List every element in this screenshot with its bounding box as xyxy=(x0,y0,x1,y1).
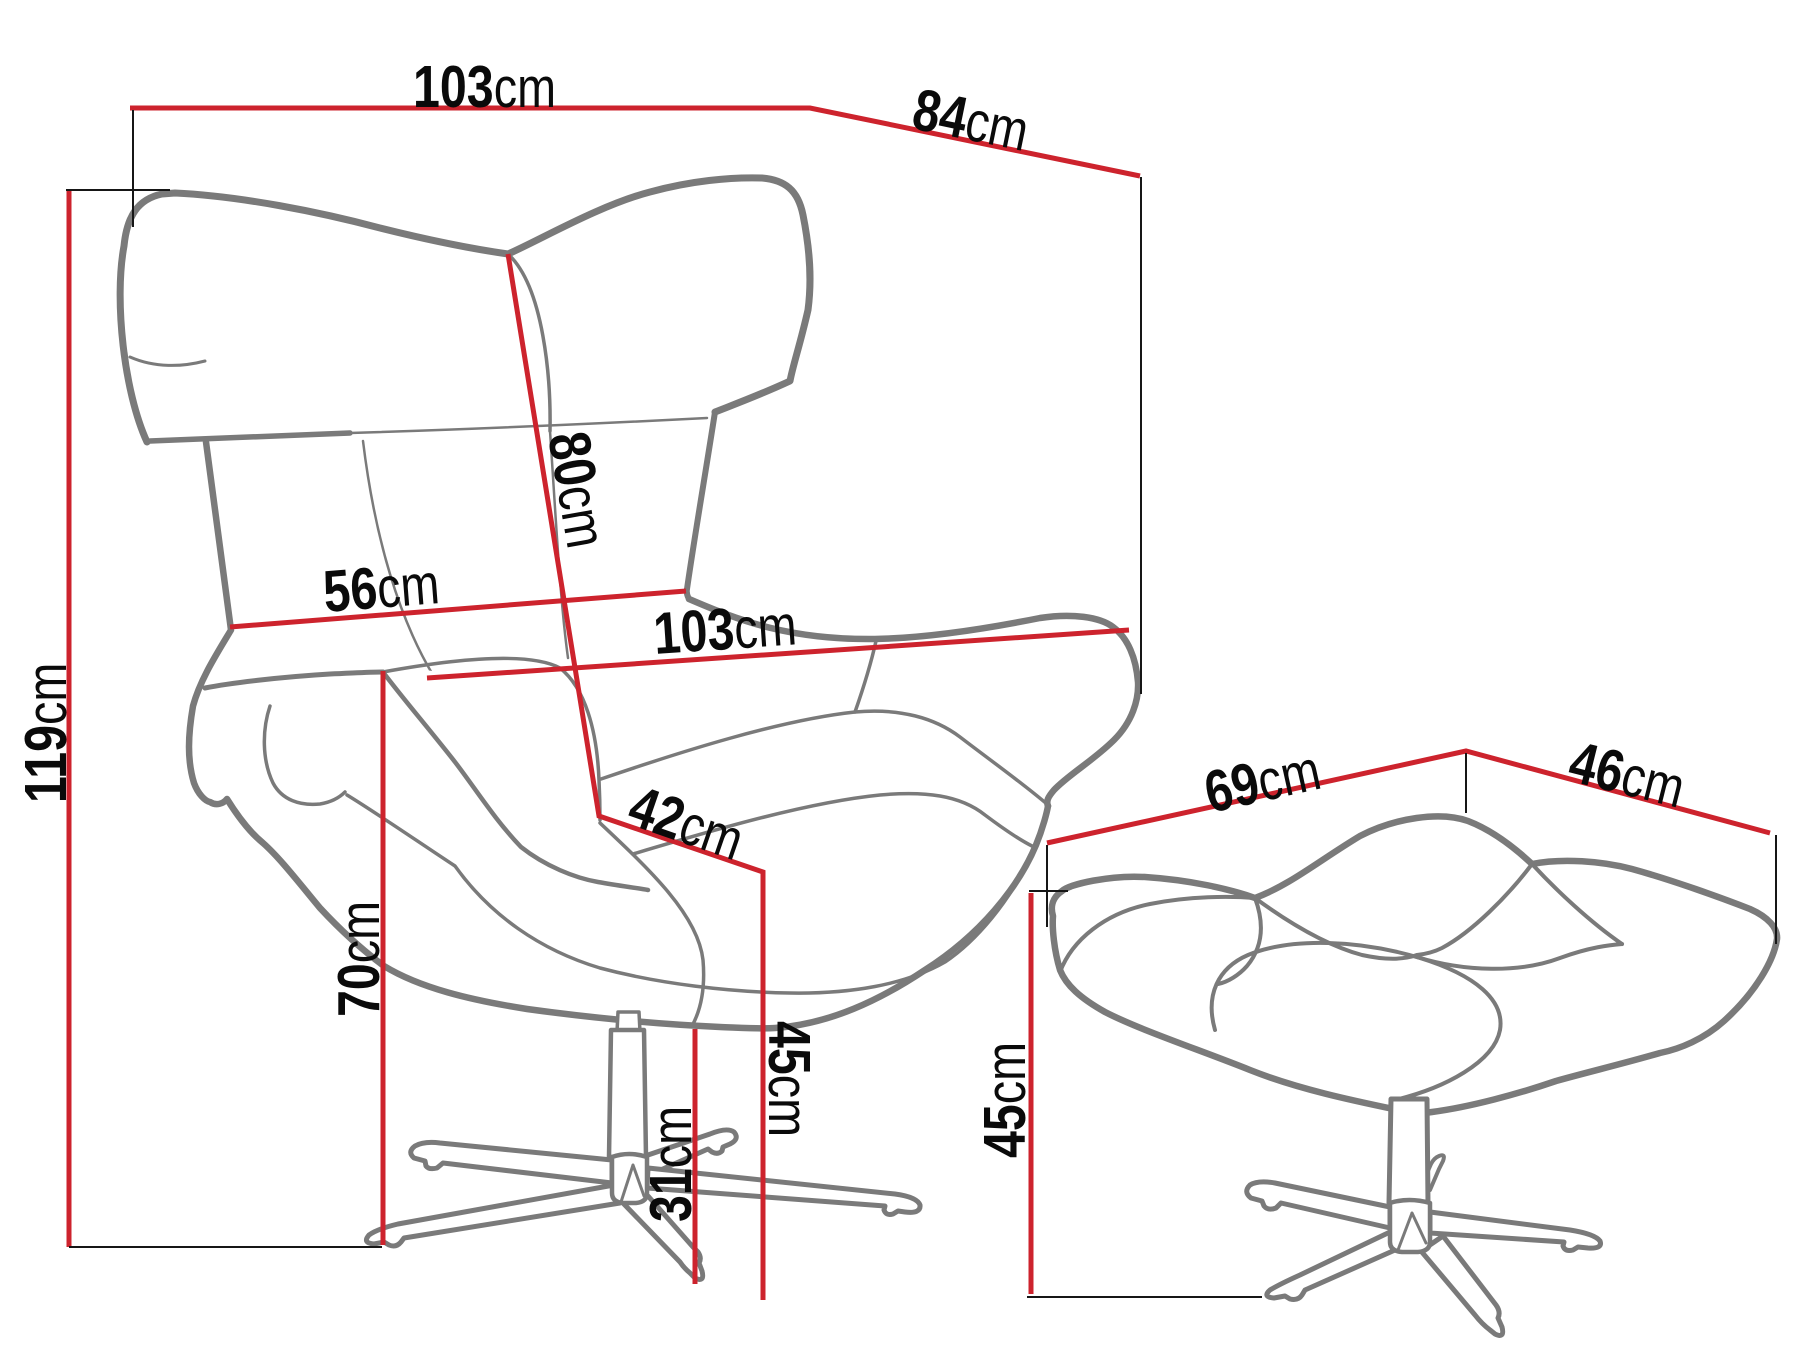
svg-text:31cm: 31cm xyxy=(639,1106,705,1222)
svg-text:56cm: 56cm xyxy=(321,551,442,626)
svg-text:45cm: 45cm xyxy=(756,1021,822,1137)
svg-text:103cm: 103cm xyxy=(651,592,798,667)
svg-text:103cm: 103cm xyxy=(413,55,556,121)
svg-text:70cm: 70cm xyxy=(327,901,393,1017)
svg-text:45cm: 45cm xyxy=(973,1042,1039,1158)
svg-text:119cm: 119cm xyxy=(14,663,80,803)
